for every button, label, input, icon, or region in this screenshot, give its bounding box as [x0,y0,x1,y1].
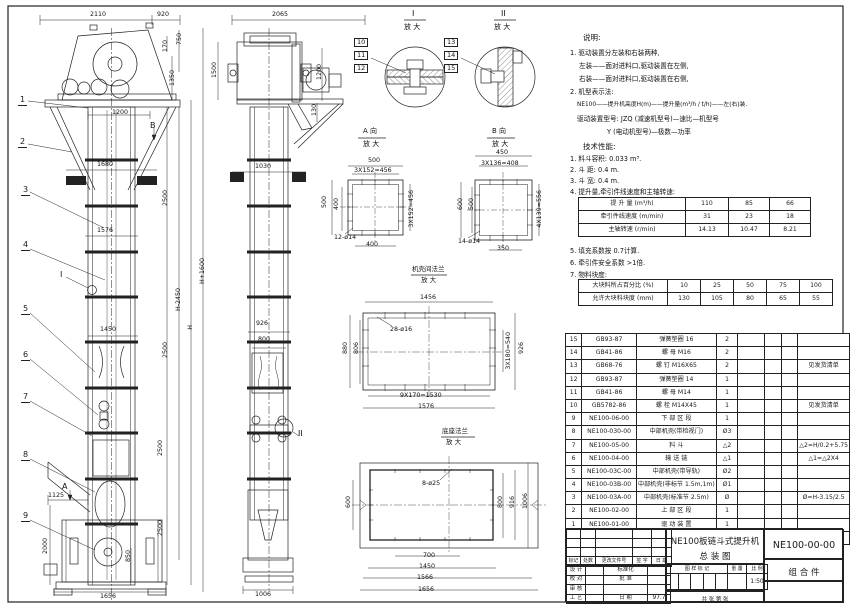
balloon-number: 5 [21,305,30,315]
table-cell: 75 [767,280,800,293]
table-cell: 10 [566,399,582,412]
balloon-number: 6 [21,351,30,361]
dim-label: 2500 [158,440,164,456]
callout-number: 15 [444,64,458,73]
role-label: 工 艺 [567,594,586,604]
dim-label: 3X136=408 [481,161,519,167]
title-block: 标记 处数 更改文件号 签 字 日 期 设 计标准化 校 对批 准 审 核 工 … [565,528,843,602]
table-cell: 2 [716,347,738,360]
dim-label: A 向 [363,128,377,135]
dim-label: 350 [497,246,509,252]
dim-label: I [412,10,414,18]
note-text: 7. 物料块度: [570,272,607,279]
table-cell: GB41-86 [582,386,637,399]
dim-label: 2065 [272,12,288,18]
dim-label: H-2450 [176,288,182,311]
table-cell [738,334,765,347]
callout-number: 13 [444,38,458,47]
note-text: 1. 料斗容积: 0.033 m³. [570,156,641,163]
dim-label: 3X152=456 [354,168,392,174]
note-text: 驱动装置型号: JZQ (减速机型号)—速比—机型号 [577,116,719,123]
callout-number: 11 [354,51,368,60]
table-cell: 螺 母 M16 [636,347,716,360]
table-cell [781,334,798,347]
note-text: Y (电动机型号)—极数—功率 [607,129,691,136]
empty-box [764,581,844,603]
table-cell [781,413,798,426]
table-cell: 23 [729,211,770,224]
dim-label: 600 [346,496,352,508]
dim-label: 8-ø25 [422,481,440,487]
table-cell: 提 升 量 (m³/h) [579,198,686,211]
table-cell [738,492,765,505]
balloon-number: 8 [21,451,30,461]
dim-label: 170 [163,40,169,52]
table-cell: 7 [566,439,582,452]
table-cell [781,439,798,452]
table-cell [738,452,765,465]
table-cell [765,334,782,347]
dim-label: 1500 [212,62,218,78]
table-cell: 见发货清单 [798,399,850,412]
note-text: 6. 牵引件安全系数 >1倍. [570,260,645,267]
table-cell: 上 部 区 段 [636,505,716,518]
table-cell [781,386,798,399]
dim-label: 1656 [100,594,116,600]
table-cell: 13 [566,360,582,373]
sheet-box: 共 张 第 张 [666,591,764,603]
dim-label: 1200 [317,64,323,80]
dim-label: 1680 [97,162,113,168]
table-cell: 25 [701,280,734,293]
dim-label: 880 [343,342,349,354]
balloon-number: 3 [21,186,30,196]
dim-label: 926 [256,321,268,327]
table-cell: 弹簧垫圈 14 [636,373,716,386]
table-cell: 1 [716,413,738,426]
table-cell: 螺 钉 M16X65 [636,360,716,373]
table-cell: 见发货清单 [798,360,850,373]
table-cell: 大块料所占百分比 (%) [579,280,668,293]
table-cell [798,347,850,360]
table-cell: NE100-06-00 [582,413,637,426]
balloon-number: 7 [21,393,30,403]
note-text: 3. 斗 宽: 0.4 m. [570,178,619,185]
role-label [604,585,648,595]
revision-grid: 标记 处数 更改文件号 签 字 日 期 [566,529,666,565]
table-cell [781,347,798,360]
dim-label: 14-ø14 [458,239,480,245]
balloon-number: 1 [18,96,27,106]
table-cell: 31 [686,211,729,224]
table-cell [798,479,850,492]
dim-label: 12-ø14 [334,235,356,241]
role-label: 标准化 [604,566,648,576]
balloon-number: 9 [21,512,30,522]
table-cell: △2=H/0.2+5.75 [798,439,850,452]
dim-label: 放 大 [492,141,508,148]
dim-label: 1030 [255,164,271,170]
sheet-label: 共 张 第 张 [667,595,763,603]
table-cell [781,452,798,465]
table-cell: NE100-02-00 [582,505,637,518]
table-cell [781,426,798,439]
table-cell: 中部机壳(标准节 2.5m) [636,492,716,505]
table-cell [798,334,850,347]
table-cell [798,505,850,518]
table-cell: NE100-03B-00 [582,479,637,492]
table-cell: GB5782-86 [582,399,637,412]
mark-scale-box: 图 样 标 记 重 量 比 例 1:50 [666,564,764,591]
table-cell [738,413,765,426]
drawing-number-box: NE100-00-00 [764,529,844,559]
table-cell [738,439,765,452]
table-cell [781,373,798,386]
table-cell [765,360,782,373]
dim-label: 800 [258,337,270,343]
cad-drawing-page: 2110920170750135015001200B168025001576H-… [0,0,850,609]
dim-label: 1006 [255,592,271,598]
table-cell: 6 [566,452,582,465]
note-text: 左装——面对进料口,驱动装置在左侧, [579,63,689,70]
drawing-name-line1: NE100板链斗式提升机 [667,535,763,547]
note-text: 5. 填充系数按 0.7计算. [570,248,639,255]
table-cell: 主轴转速 (r/min) [579,224,686,237]
dim-label: 放 大 [363,141,379,148]
table-cell: 中部机壳(带导轨) [636,465,716,478]
table-cell: 3 [566,492,582,505]
table-cell: NE100-03A-00 [582,492,637,505]
dim-label: 放 大 [404,24,420,31]
dim-label: 920 [157,12,169,18]
note-text: 右装——面对进料口,驱动装置在右侧, [579,76,689,83]
dim-label: 800 [498,496,504,508]
dim-label: 2110 [90,12,106,18]
table-cell: 80 [734,293,767,306]
drawing-number: NE100-00-00 [765,540,843,551]
table-cell: 2 [716,334,738,347]
table-cell [765,373,782,386]
signature-grid: 设 计标准化 校 对批 准 审 核 工 艺日 期97.7 [566,565,666,603]
table-cell [765,465,782,478]
dim-label: H+1600 [200,258,206,284]
table-cell: 14 [566,347,582,360]
callout-number: 10 [354,38,368,47]
callout-number: 12 [354,64,368,73]
bom-table: 15GB93-87弹簧垫圈 16214GB41-86螺 母 M16213GB68… [565,333,850,545]
table-cell: 中部机壳(非标节 1.5m,1m) [636,479,716,492]
table-cell [798,386,850,399]
table-cell: △2 [716,439,738,452]
dim-label: 放 大 [494,24,510,31]
table-cell: 18 [770,211,811,224]
role-label: 批 准 [604,575,648,585]
dim-label: 机壳间法兰 [412,266,445,273]
dim-label: 926 [519,342,525,354]
table-cell: NE100-030-00 [582,426,637,439]
note-text: 说明: [583,34,601,42]
table-cell [738,465,765,478]
dim-label: 1450 [419,564,435,570]
part-type: 组 合 件 [765,566,843,578]
table-cell [798,413,850,426]
table-cell: 1 [716,505,738,518]
dim-label: 450 [496,150,508,156]
dim-label: 底座法兰 [442,428,468,435]
dim-label: 400 [366,242,378,248]
table-cell [738,347,765,360]
weight-label: 重 量 [728,565,747,574]
mark-scale-table: 图 样 标 记 重 量 比 例 1:50 [666,564,768,590]
note-text: NE100——提升机高度H(m)——提升量(m³/h / t/h)——左(右)装… [577,103,747,109]
table-cell: 下 部 区 段 [636,413,716,426]
revision-table: 标记 处数 更改文件号 签 字 日 期 [566,529,672,567]
table-cell [738,426,765,439]
table-cell: 100 [800,280,833,293]
table-cell: 1 [716,373,738,386]
dim-label: 600 [458,198,464,210]
table-cell: 中部机壳(带检视门) [636,426,716,439]
table-cell: 允许大块料块度 (mm) [579,293,668,306]
dim-label: 2500 [158,520,164,536]
drawing-name-line2: 总 装 图 [667,550,763,562]
dim-label: 1450 [100,327,116,333]
note-text: 技术性能: [583,143,616,151]
table-cell [765,479,782,492]
role-label: 设 计 [567,566,586,576]
table-cell [781,399,798,412]
dim-label: II [501,10,506,18]
dim-label: 4X139=556 [537,190,543,228]
table-cell: 牵引件线速度 (m/min) [579,211,686,224]
table-cell [738,373,765,386]
table-cell: Ø [716,492,738,505]
table-cell: 8 [566,426,582,439]
table-cell [765,399,782,412]
table-cell: 输 送 链 [636,452,716,465]
table-cell: GB93-87 [582,334,637,347]
table-cell: 65 [767,293,800,306]
dim-label: B 向 [492,128,506,135]
table-cell [765,413,782,426]
dim-label: 400 [334,198,340,210]
table-cell: 4 [566,479,582,492]
table-cell [738,505,765,518]
lump-size-table: 大块料所占百分比 (%)10255075100允许大块料块度 (mm)13010… [578,279,833,306]
dim-label: A [62,483,67,491]
table-cell: GB68-76 [582,360,637,373]
dim-label: 500 [368,158,380,164]
table-cell [781,465,798,478]
table-cell: 85 [729,198,770,211]
dim-label: 2500 [163,342,169,358]
table-cell: 5 [566,465,582,478]
dim-label: 750 [177,33,183,45]
dim-label: 3X180=540 [506,332,512,370]
table-cell [781,360,798,373]
table-cell: 10 [668,280,701,293]
table-cell: 8.21 [770,224,811,237]
table-cell: Ø1 [716,479,738,492]
labels-layer: 2110920170750135015001200B168025001576H-… [0,0,850,609]
table-cell: GB41-86 [582,347,637,360]
table-cell [798,373,850,386]
table-cell: NE100-03C-00 [582,465,637,478]
dim-label: II [298,430,303,438]
dim-label: 2000 [43,538,49,554]
table-cell: 料 斗 [636,439,716,452]
dim-label: 130 [312,104,318,116]
table-cell: △1 [716,452,738,465]
table-cell: 55 [800,293,833,306]
table-cell: 11 [566,386,582,399]
table-cell [765,439,782,452]
table-cell [738,386,765,399]
table-cell: 9 [566,413,582,426]
dim-label: 3X152=456 [409,190,415,228]
table-cell [738,360,765,373]
part-type-box: 组 合 件 [764,559,844,581]
dim-label: 28-ø16 [390,327,412,333]
dim-label: 1456 [420,295,436,301]
table-cell [765,492,782,505]
performance-table: 提 升 量 (m³/h)1108566牵引件线速度 (m/min)312318主… [578,197,811,237]
table-cell [781,505,798,518]
table-cell [738,399,765,412]
dim-label: 1125 [48,493,64,499]
note-text: 4. 提升量,牵引件线速度和主轴转速: [570,189,675,196]
dim-label: 500 [469,198,475,210]
dim-label: 916 [510,496,516,508]
table-cell: 15 [566,334,582,347]
callout-number: 14 [444,51,458,60]
dim-label: 9X170=1530 [400,393,442,399]
dim-label: I [60,271,62,279]
dim-label: 1200 [112,110,128,116]
mark-label: 图 样 标 记 [667,565,728,574]
table-cell: 66 [770,198,811,211]
note-text: 2. 斗 距: 0.4 m. [570,167,619,174]
table-cell [798,465,850,478]
dim-label: 2500 [163,190,169,206]
table-cell [781,479,798,492]
table-cell [765,452,782,465]
table-cell: 12 [566,373,582,386]
dim-label: 1656 [418,587,434,593]
table-cell: 10.47 [729,224,770,237]
dim-label: 806 [354,342,360,354]
drawing-name-box: NE100板链斗式提升机 总 装 图 [666,529,764,564]
role-label: 日 期 [604,594,648,604]
table-cell: Ø=H-3.15/2.5 [798,492,850,505]
note-text: 1. 驱动装置分左装和右装两种, [570,50,660,57]
table-cell: Ø3 [716,426,738,439]
table-cell: 2 [716,360,738,373]
dim-label: B [150,122,156,130]
table-cell: NE100-05-00 [582,439,637,452]
dim-label: 1576 [97,228,113,234]
table-cell [765,347,782,360]
table-cell: 1 [716,386,738,399]
table-cell [738,479,765,492]
table-cell: 2 [566,505,582,518]
table-cell: 130 [668,293,701,306]
table-cell: 105 [701,293,734,306]
balloon-number: 4 [21,241,30,251]
table-cell: 弹簧垫圈 16 [636,334,716,347]
dim-label: H [188,325,194,330]
dim-label: 放 大 [421,277,436,284]
table-cell [765,426,782,439]
table-cell: GB93-87 [582,373,637,386]
table-cell [765,386,782,399]
dim-label: 700 [423,553,435,559]
dim-label: 1006 [523,493,529,509]
table-cell: Ø2 [716,465,738,478]
table-cell: 14.13 [686,224,729,237]
dim-label: 放 大 [446,439,461,446]
table-cell [781,492,798,505]
table-cell: 螺 栓 M14X45 [636,399,716,412]
table-cell: 110 [686,198,729,211]
table-cell: △1=△2X4 [798,452,850,465]
dim-label: 850 [126,550,132,562]
role-label: 审 核 [567,585,586,595]
table-cell [765,505,782,518]
signature-table: 设 计标准化 校 对批 准 审 核 工 艺日 期97.7 [566,565,671,604]
note-text: 2. 机型表示法: [570,89,614,96]
role-label: 校 对 [567,575,586,585]
table-cell: 1 [716,399,738,412]
table-cell: 50 [734,280,767,293]
balloon-number: 2 [18,138,27,148]
dim-label: 1566 [417,575,433,581]
table-cell: 螺 母 M14 [636,386,716,399]
dim-label: 500 [322,196,328,208]
table-cell: NE100-04-00 [582,452,637,465]
table-cell [798,426,850,439]
dim-label: 1576 [418,404,434,410]
dim-label: 1350 [170,70,176,86]
